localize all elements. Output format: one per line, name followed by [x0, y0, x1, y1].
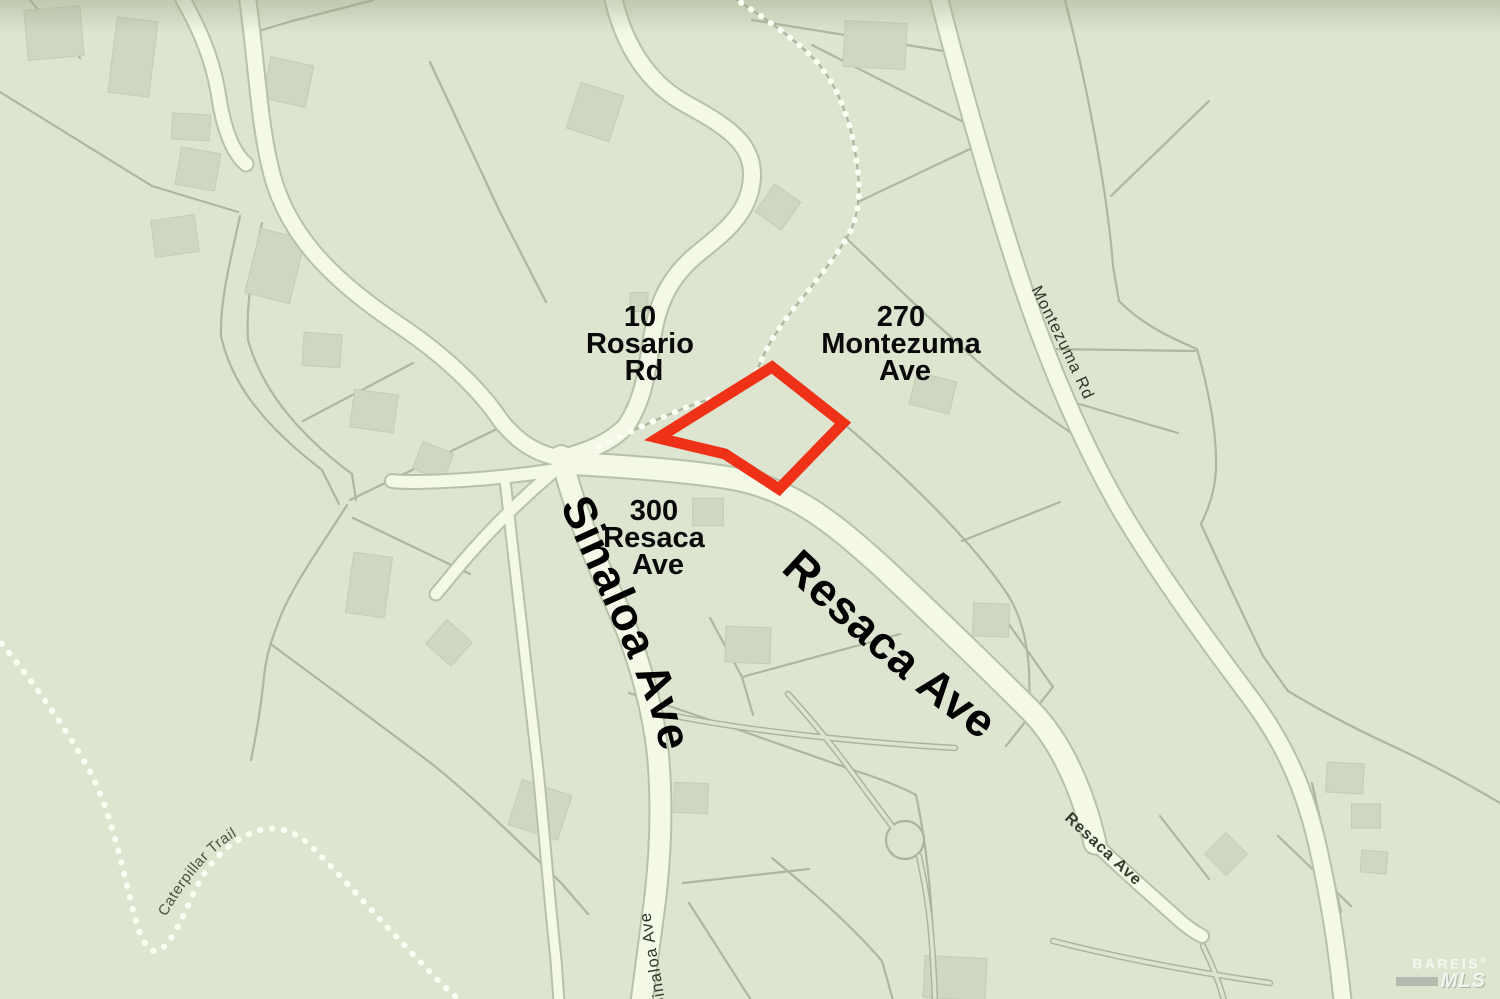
registered-trademark-icon: ®	[1480, 956, 1486, 965]
building-footprint	[171, 113, 210, 141]
building-footprint	[673, 782, 708, 813]
watermark-brand: BAREIS®	[1396, 954, 1486, 971]
watermark-bar	[1396, 977, 1438, 986]
bareis-mls-watermark: BAREIS® MLS	[1396, 954, 1486, 991]
watermark-mls: MLS	[1441, 971, 1486, 991]
building-footprint	[302, 332, 342, 368]
building-footprint	[151, 215, 200, 258]
building-footprint	[262, 57, 314, 107]
building-footprint	[1352, 804, 1381, 828]
building-footprint	[175, 147, 221, 191]
building-footprint	[725, 626, 771, 664]
building-footprint	[1326, 762, 1365, 794]
map-viewport: 10 Rosario Rd 270 Montezuma Ave 300 Resa…	[0, 0, 1500, 999]
building-footprint	[345, 552, 392, 618]
parcel-map: 10 Rosario Rd 270 Montezuma Ave 300 Resa…	[0, 0, 1500, 999]
building-footprint	[1360, 850, 1388, 874]
top-shade-gradient	[0, 0, 1500, 34]
building-footprint	[972, 603, 1009, 637]
building-footprint	[350, 389, 399, 433]
